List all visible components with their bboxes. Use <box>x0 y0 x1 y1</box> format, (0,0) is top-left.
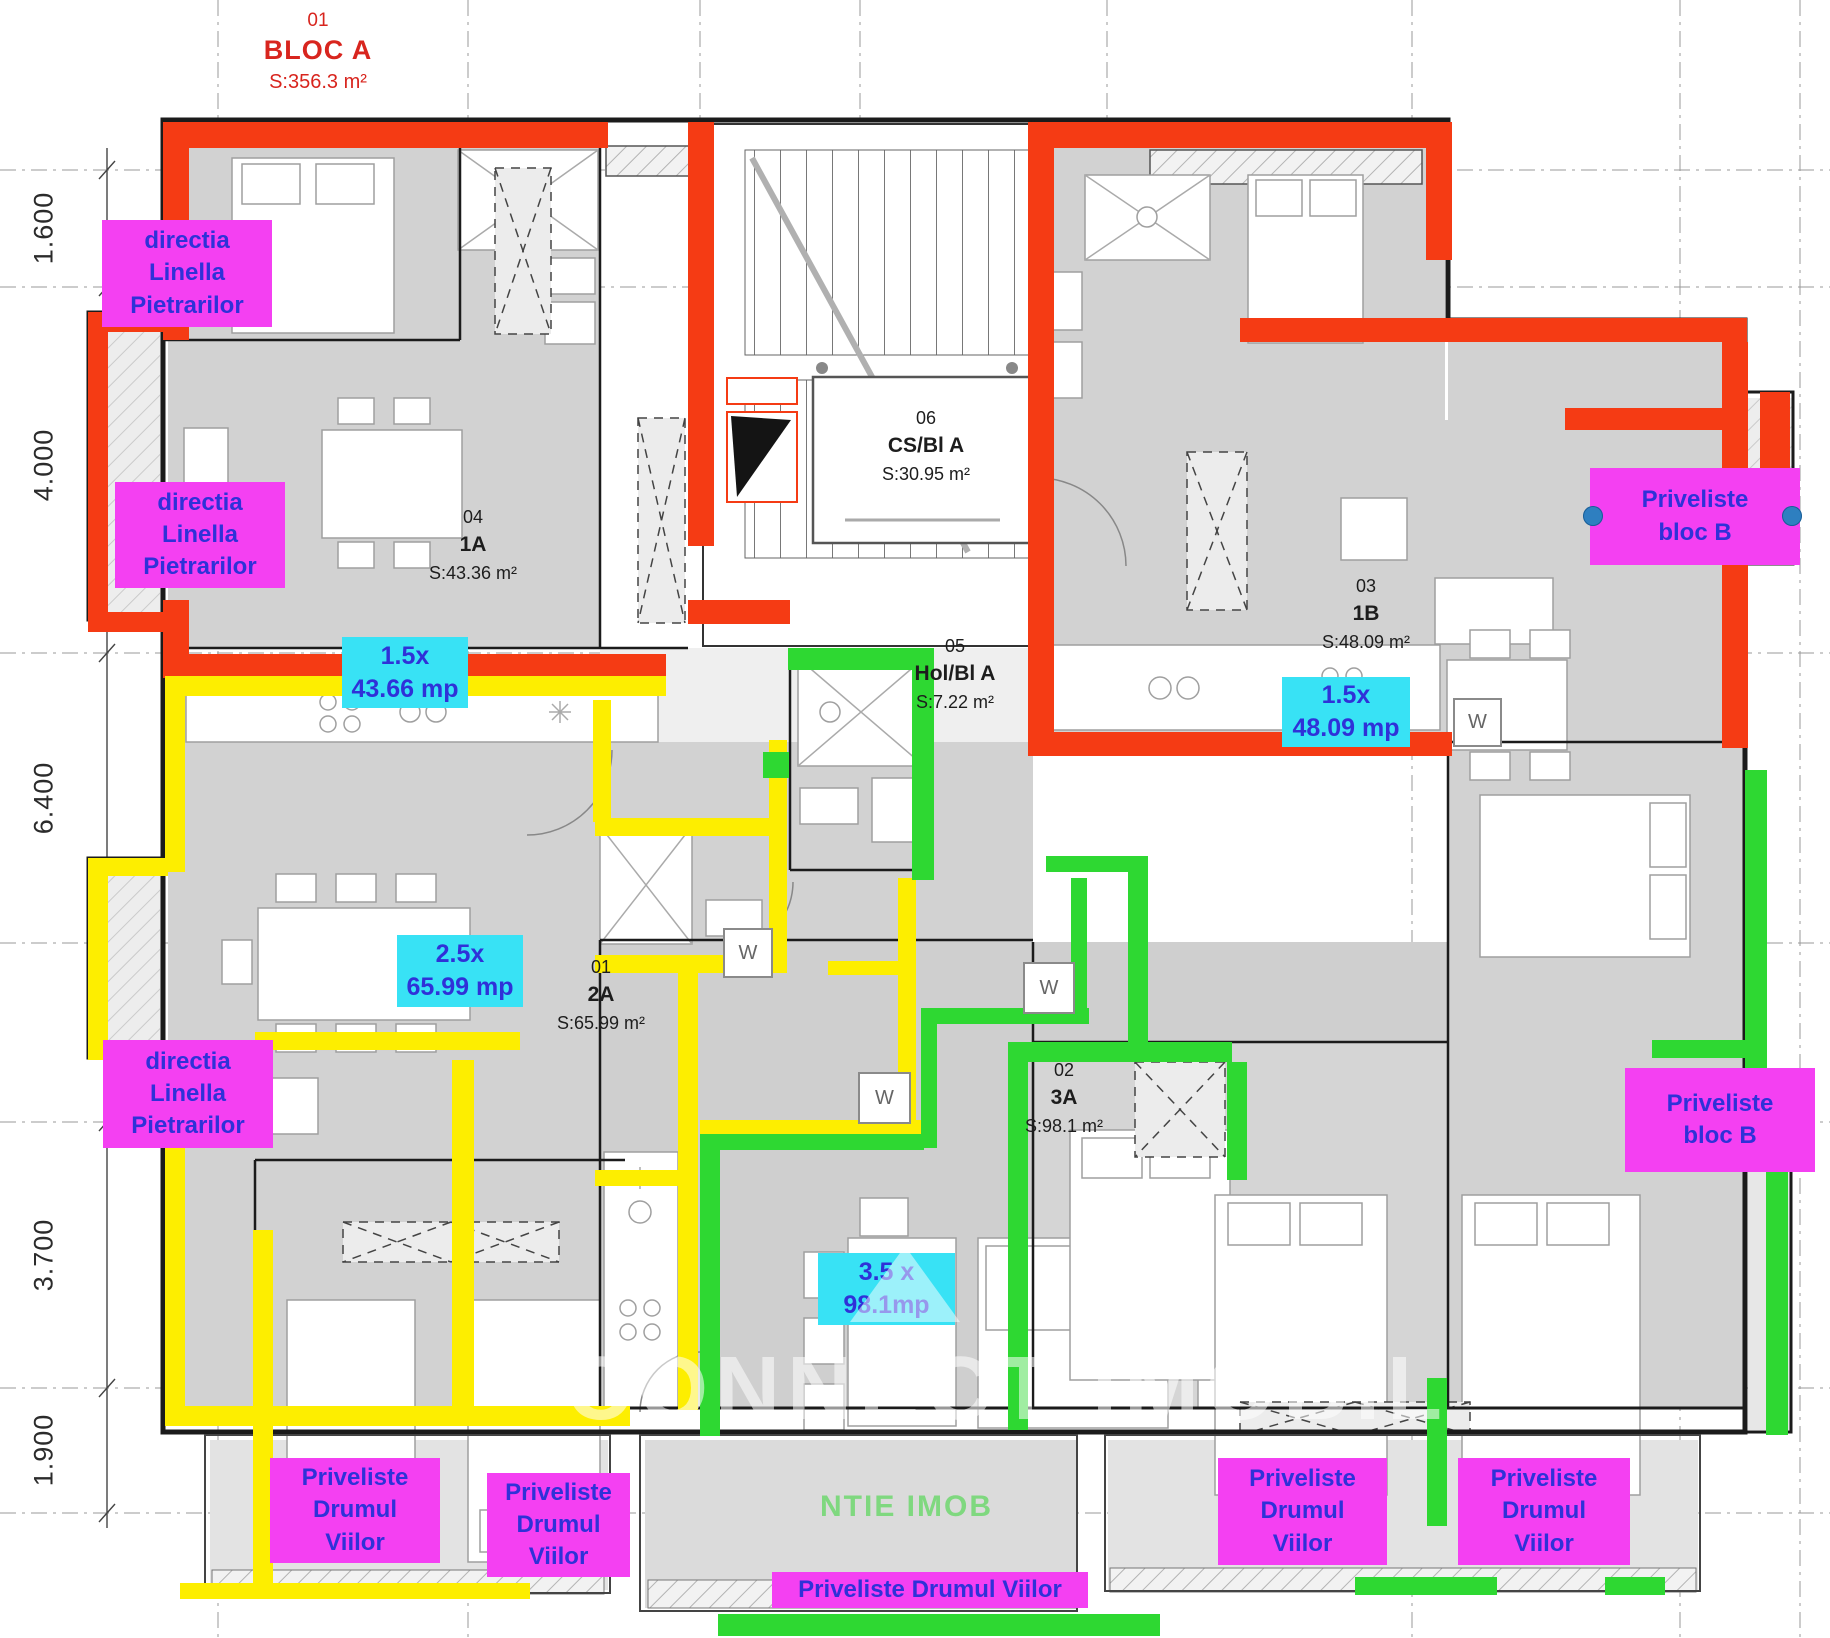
room-number: 02 <box>1025 1056 1103 1084</box>
room-number: 06 <box>882 404 970 432</box>
annotation-line: Priveliste <box>1491 1463 1598 1495</box>
room-label-1a: 04 1A S:43.36 m² <box>429 503 517 587</box>
dimension-label: 3.700 <box>29 1219 60 1292</box>
annotation-line: Drumul <box>313 1494 397 1526</box>
badge-1a-multiplier[interactable]: 1.5x 43.66 mp <box>342 637 468 708</box>
annotation-line: Priveliste <box>1667 1088 1774 1120</box>
washer-box: W <box>1023 962 1075 1014</box>
washer-box: W <box>723 928 773 978</box>
badge-factor: 1.5x <box>381 640 430 673</box>
room-name: 1B <box>1322 600 1410 628</box>
room-label-3a: 02 3A S:98.1 m² <box>1025 1056 1103 1140</box>
annotation-line: Viilor <box>325 1527 385 1559</box>
washer-box: W <box>1453 698 1502 747</box>
annotation-line: Pietrarilor <box>130 290 243 322</box>
annotation-line: directia <box>144 225 229 257</box>
annotation-priveliste-drumul-1[interactable]: Priveliste Drumul Viilor <box>270 1458 440 1563</box>
badge-area: 98.1mp <box>843 1289 929 1322</box>
annotation-line: bloc B <box>1658 517 1731 549</box>
block-name: BLOC A <box>264 33 373 69</box>
annotation-line: Pietrarilor <box>143 551 256 583</box>
room-name: 2A <box>557 981 645 1009</box>
annotation-priveliste-bloc-b-2[interactable]: Priveliste bloc B <box>1625 1068 1815 1172</box>
annotation-line: directia <box>145 1046 230 1078</box>
badge-area: 65.99 mp <box>406 971 513 1004</box>
room-name: Hol/Bl A <box>915 660 996 688</box>
washer-label: W <box>1468 711 1487 734</box>
annotation-directia-3[interactable]: directia Linella Pietrarilor <box>103 1040 273 1148</box>
room-label-1b: 03 1B S:48.09 m² <box>1322 572 1410 656</box>
room-number: 04 <box>429 503 517 531</box>
room-area: S:65.99 m² <box>557 1009 645 1037</box>
badge-factor: 3.5 x <box>859 1256 915 1289</box>
room-area: S:7.22 m² <box>915 688 996 716</box>
block-number: 01 <box>264 8 373 33</box>
room-number: 01 <box>557 953 645 981</box>
washer-box: W <box>858 1072 911 1124</box>
annotation-priveliste-drumul-3[interactable]: Priveliste Drumul Viilor <box>1218 1458 1387 1565</box>
selection-handle-right[interactable] <box>1782 506 1802 526</box>
annotation-directia-2[interactable]: directia Linella Pietrarilor <box>115 482 285 588</box>
room-label-2a: 01 2A S:65.99 m² <box>557 953 645 1037</box>
annotation-line: Priveliste <box>1642 484 1749 516</box>
badge-2a-multiplier[interactable]: 2.5x 65.99 mp <box>397 935 523 1007</box>
annotation-line: Linella <box>150 1078 226 1110</box>
annotation-line: Priveliste <box>1249 1463 1356 1495</box>
room-area: S:48.09 m² <box>1322 628 1410 656</box>
annotation-priveliste-bloc-b-1[interactable]: Priveliste bloc B <box>1590 468 1800 565</box>
floor-plan-drawing <box>0 0 1830 1638</box>
room-name: 3A <box>1025 1084 1103 1112</box>
dimension-label: 1.600 <box>29 192 60 265</box>
annotation-line: Viilor <box>1514 1528 1574 1560</box>
washer-label: W <box>1040 977 1059 1000</box>
annotation-priveliste-drumul-wide[interactable]: Priveliste Drumul Viilor <box>772 1572 1088 1608</box>
annotation-line: Linella <box>149 257 225 289</box>
annotation-line: Drumul <box>1261 1495 1345 1527</box>
room-label-cs: 06 CS/Bl A S:30.95 m² <box>882 404 970 488</box>
washer-label: W <box>875 1087 894 1110</box>
annotation-line: Viilor <box>529 1541 589 1573</box>
selection-handle-left[interactable] <box>1583 506 1603 526</box>
badge-factor: 2.5x <box>436 938 485 971</box>
annotation-line: Viilor <box>1273 1528 1333 1560</box>
dimension-label: 1.900 <box>29 1414 60 1487</box>
annotation-line: directia <box>157 487 242 519</box>
room-number: 03 <box>1322 572 1410 600</box>
badge-factor: 1.5x <box>1322 679 1371 712</box>
annotation-line: Priveliste <box>302 1462 409 1494</box>
annotation-line: bloc B <box>1683 1120 1756 1152</box>
badge-area: 48.09 mp <box>1292 712 1399 745</box>
badge-1b-multiplier[interactable]: 1.5x 48.09 mp <box>1282 677 1410 747</box>
annotation-line: Pietrarilor <box>131 1110 244 1142</box>
room-name: CS/Bl A <box>882 432 970 460</box>
room-area: S:43.36 m² <box>429 559 517 587</box>
annotation-line: Drumul <box>1502 1495 1586 1527</box>
block-area: S:356.3 m² <box>264 69 373 95</box>
badge-3a-multiplier[interactable]: 3.5 x 98.1mp <box>818 1253 955 1325</box>
dimension-label: 4.000 <box>29 429 60 502</box>
annotation-line: Priveliste <box>505 1477 612 1509</box>
room-label-hol: 05 Hol/Bl A S:7.22 m² <box>915 632 996 716</box>
floor-plan-canvas: 01 BLOC A S:356.3 m² 1.600 4.000 6.400 3… <box>0 0 1830 1638</box>
block-title: 01 BLOC A S:356.3 m² <box>264 8 373 95</box>
annotation-line: Linella <box>162 519 238 551</box>
badge-area: 43.66 mp <box>351 673 458 706</box>
dimension-label: 6.400 <box>29 762 60 835</box>
washer-label: W <box>739 942 758 965</box>
room-area: S:30.95 m² <box>882 460 970 488</box>
annotation-priveliste-drumul-4[interactable]: Priveliste Drumul Viilor <box>1458 1458 1630 1565</box>
annotation-directia-1[interactable]: directia Linella Pietrarilor <box>102 220 272 327</box>
annotation-line: Drumul <box>517 1509 601 1541</box>
room-area: S:98.1 m² <box>1025 1112 1103 1140</box>
room-name: 1A <box>429 531 517 559</box>
annotation-priveliste-drumul-2[interactable]: Priveliste Drumul Viilor <box>487 1473 630 1577</box>
room-number: 05 <box>915 632 996 660</box>
annotation-line: Priveliste Drumul Viilor <box>798 1574 1062 1606</box>
